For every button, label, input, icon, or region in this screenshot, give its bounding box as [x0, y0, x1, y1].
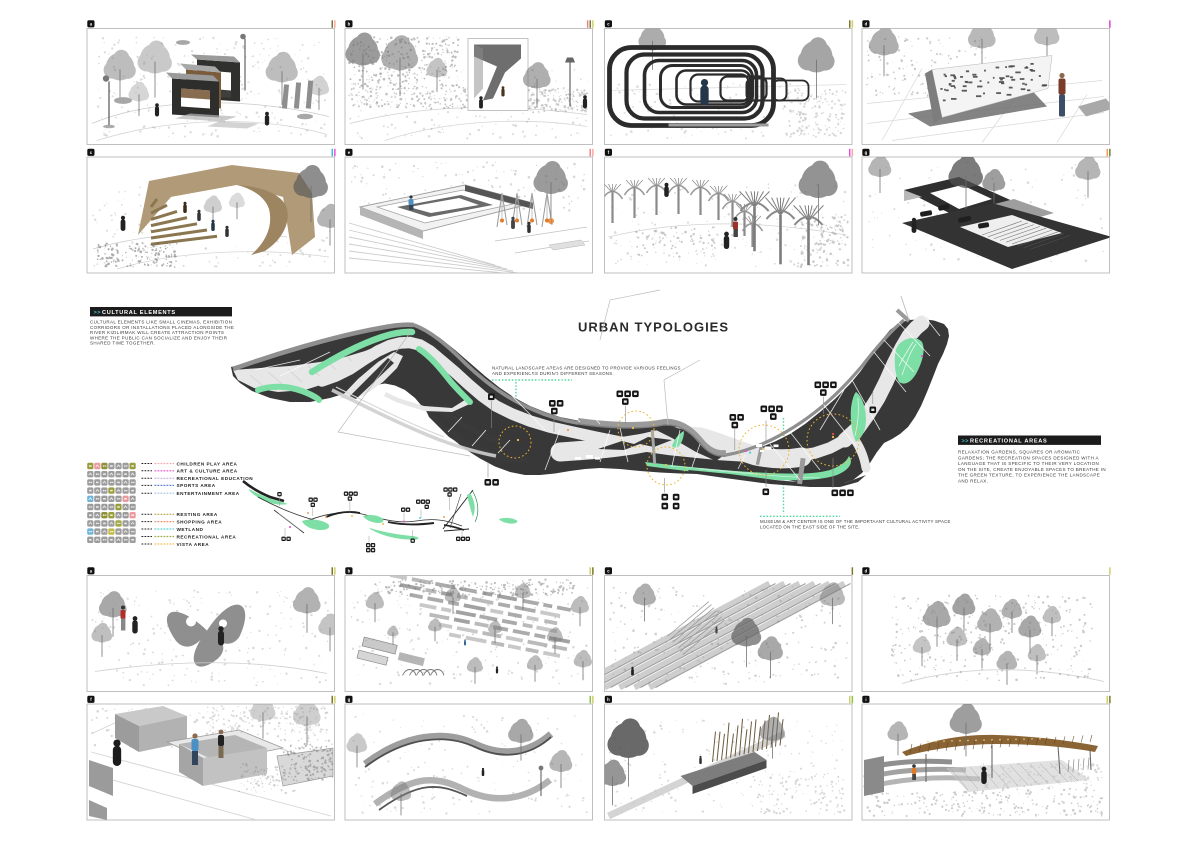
svg-text:d: d	[865, 21, 868, 26]
svg-text:h: h	[607, 697, 610, 702]
svg-text:d: d	[865, 568, 868, 573]
svg-text:g: g	[348, 697, 351, 702]
svg-text:i: i	[865, 697, 866, 702]
svg-text:b: b	[348, 21, 351, 26]
svg-text:g: g	[865, 150, 868, 155]
svg-text:b: b	[348, 568, 351, 573]
